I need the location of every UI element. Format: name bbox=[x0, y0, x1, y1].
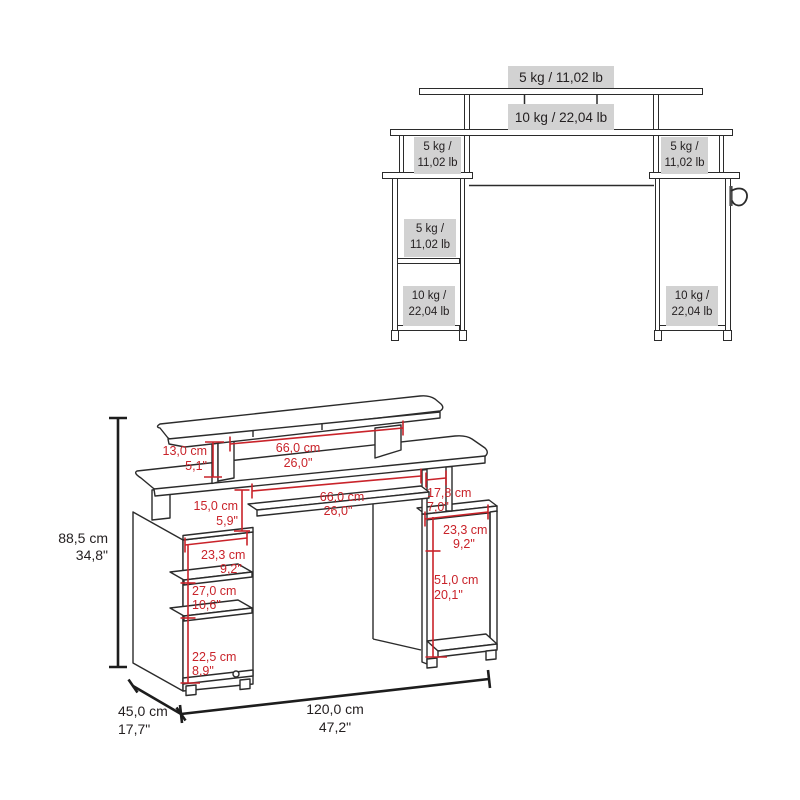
left-pedestal-side-panel bbox=[133, 512, 183, 691]
shelf-support-height-cm: 13,0 cm bbox=[157, 444, 207, 458]
line-art-layer bbox=[0, 0, 800, 800]
capacity-label-left-riser: 5 kg /11,02 lb bbox=[414, 137, 461, 174]
right-support-depth-in: 7,0" bbox=[427, 500, 467, 514]
left-pedestal-foot bbox=[240, 679, 250, 690]
capacity-label-left-shelf: 5 kg /11,02 lb bbox=[404, 219, 456, 257]
right-pedestal-foot bbox=[427, 658, 437, 668]
right-top-compartment-in: 9,2" bbox=[453, 537, 493, 551]
left-pedestal-foot bbox=[186, 685, 196, 696]
overall-width-in: 47,2" bbox=[295, 719, 375, 735]
knee-width-in: 26,0" bbox=[298, 504, 378, 518]
capacity-line: 11,02 lb bbox=[417, 157, 457, 169]
right-top-compartment-cm: 23,3 cm bbox=[443, 523, 503, 537]
right-pedestal-foot bbox=[486, 650, 496, 660]
capacity-line: 5 kg / bbox=[416, 223, 444, 235]
tray-clearance-in: 5,9" bbox=[188, 514, 238, 528]
capacity-line: 11,02 lb bbox=[664, 157, 704, 169]
capacity-line: 22,04 lb bbox=[409, 306, 450, 318]
overall-width-cm: 120,0 cm bbox=[295, 701, 375, 717]
capacity-line: 5 kg / bbox=[423, 141, 451, 153]
overall-depth-cm: 45,0 cm bbox=[118, 703, 178, 719]
capacity-line: 10 kg / bbox=[412, 290, 447, 302]
right-support-depth-cm: 17,8 cm bbox=[427, 486, 487, 500]
shelf-support-height-in: 5,1" bbox=[157, 459, 207, 473]
capacity-line: 11,02 lb bbox=[410, 239, 450, 251]
overall-height-cm: 88,5 cm bbox=[48, 530, 108, 546]
right-main-compartment-in: 20,1" bbox=[434, 588, 480, 602]
left-bottom-compartment-in: 8,9" bbox=[192, 664, 228, 678]
left-top-compartment-cm: 23,3 cm bbox=[201, 548, 261, 562]
desk-spec-sheet: 5 kg / 11,02 lb 10 kg / 22,04 lb 5 kg /1… bbox=[0, 0, 800, 800]
cam-lock-detail bbox=[233, 671, 239, 677]
capacity-line: 22,04 lb bbox=[672, 306, 713, 318]
headset-hook-icon bbox=[731, 186, 747, 206]
left-middle-compartment-cm: 27,0 cm bbox=[192, 584, 252, 598]
capacity-label-right-riser: 5 kg /11,02 lb bbox=[661, 137, 708, 174]
capacity-label-monitor-shelf: 5 kg / 11,02 lb bbox=[508, 66, 614, 88]
capacity-label-right-base: 10 kg /22,04 lb bbox=[666, 286, 718, 326]
capacity-label-left-base: 10 kg /22,04 lb bbox=[403, 286, 455, 326]
left-bottom-compartment-cm: 22,5 cm bbox=[192, 650, 252, 664]
overall-depth-in: 17,7" bbox=[118, 721, 164, 737]
capacity-line: 5 kg / bbox=[670, 141, 698, 153]
shelf-width-cm: 66,0 cm bbox=[258, 441, 338, 455]
left-top-compartment-in: 9,2" bbox=[220, 562, 256, 576]
knee-width-cm: 66,0 cm bbox=[302, 490, 382, 504]
right-main-compartment-cm: 51,0 cm bbox=[434, 573, 494, 587]
right-pedestal-left-wall bbox=[422, 514, 427, 664]
capacity-label-desktop: 10 kg / 22,04 lb bbox=[508, 104, 614, 130]
tray-clearance-cm: 15,0 cm bbox=[188, 499, 238, 513]
left-middle-compartment-in: 10,6" bbox=[192, 598, 232, 612]
overall-height-in: 34,8" bbox=[48, 547, 108, 563]
shelf-width-in: 26,0" bbox=[258, 456, 338, 470]
capacity-line: 10 kg / bbox=[675, 290, 710, 302]
